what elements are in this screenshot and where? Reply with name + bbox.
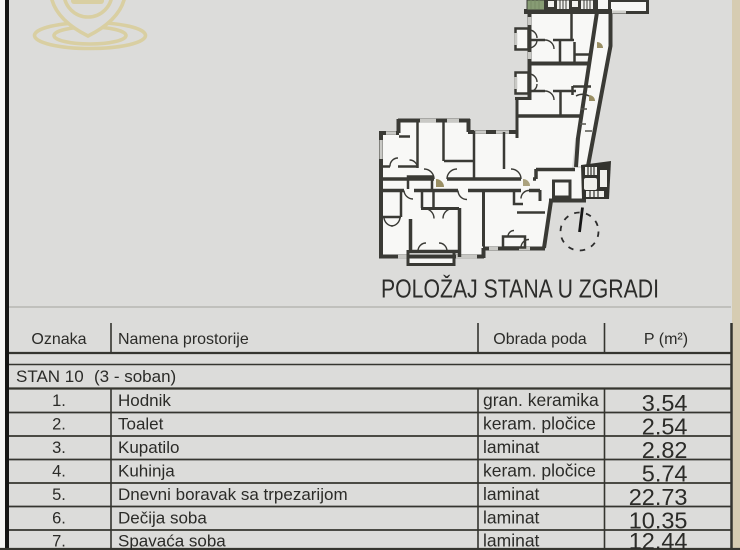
svg-text:keram. pločice: keram. pločice: [483, 414, 596, 434]
svg-text:laminat: laminat: [483, 437, 540, 457]
svg-text:12.44: 12.44: [629, 528, 688, 550]
svg-text:Toalet: Toalet: [118, 415, 164, 434]
svg-text:Dečija soba: Dečija soba: [118, 509, 207, 528]
svg-text:5.74: 5.74: [642, 461, 688, 487]
svg-text:Kupatilo: Kupatilo: [118, 438, 179, 457]
svg-text:STAN 10: STAN 10: [16, 367, 84, 386]
svg-text:Obrada poda: Obrada poda: [493, 331, 587, 348]
svg-text:6.: 6.: [52, 510, 66, 528]
svg-text:P (m²): P (m²): [644, 331, 688, 348]
svg-text:1.: 1.: [52, 392, 66, 410]
svg-text:laminat: laminat: [483, 508, 540, 528]
svg-text:7.: 7.: [52, 533, 66, 550]
svg-text:POLOŽAJ STANA U ZGRADI: POLOŽAJ STANA U ZGRADI: [381, 274, 659, 304]
svg-text:keram. pločice: keram. pločice: [483, 461, 596, 481]
svg-text:2.: 2.: [52, 416, 66, 434]
svg-text:Kuhinja: Kuhinja: [118, 462, 175, 481]
svg-text:Oznaka: Oznaka: [31, 331, 86, 348]
svg-text:(3 - soban): (3 - soban): [94, 367, 176, 386]
svg-text:laminat: laminat: [483, 531, 540, 550]
svg-text:2.54: 2.54: [642, 414, 688, 440]
svg-text:5.: 5.: [52, 486, 66, 504]
svg-text:3.54: 3.54: [642, 390, 688, 416]
svg-text:22.73: 22.73: [629, 484, 688, 510]
svg-text:Namena prostorije: Namena prostorije: [118, 331, 249, 348]
svg-text:3.: 3.: [52, 439, 66, 457]
svg-text:laminat: laminat: [483, 484, 540, 504]
svg-text:2.82: 2.82: [642, 437, 688, 463]
svg-text:4.: 4.: [52, 463, 66, 481]
svg-text:Dnevni boravak sa trpezarijom: Dnevni boravak sa trpezarijom: [118, 485, 348, 504]
svg-text:Spavaća soba: Spavaća soba: [118, 532, 226, 550]
svg-text:Hodnik: Hodnik: [118, 391, 171, 410]
svg-text:gran. keramika: gran. keramika: [483, 390, 599, 410]
